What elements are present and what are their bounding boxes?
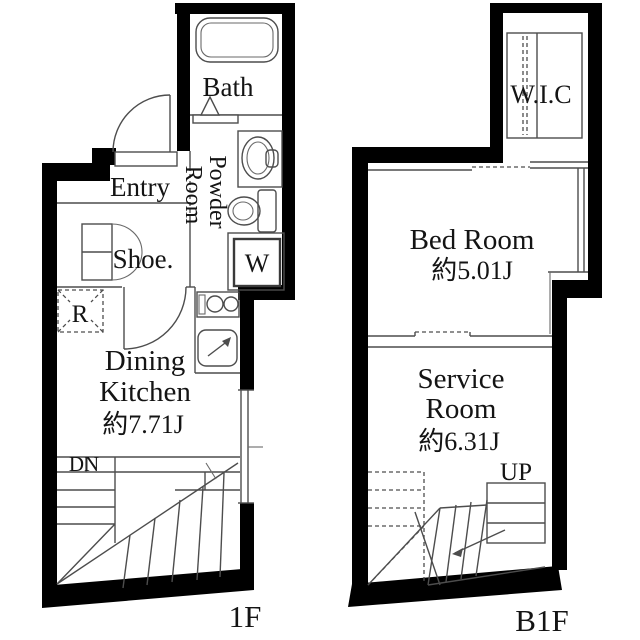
window-1f (238, 390, 263, 503)
stairs-1f (57, 457, 240, 588)
dk-door-arc (124, 287, 186, 349)
wic-label: W.I.C (510, 80, 571, 109)
powder-room-label: Powder Room (180, 155, 230, 234)
service-room-label-1: Service (418, 363, 505, 395)
kitchen-sink-icon (198, 330, 237, 366)
dining-kitchen-label-2: Kitchen (99, 376, 191, 408)
shoe-label: Shoe. (113, 244, 174, 274)
refrigerator-label: R (72, 301, 89, 328)
stairs-b1f (368, 472, 545, 585)
toilet-icon (228, 190, 276, 232)
service-room-size: 約6.31J (418, 427, 500, 456)
bathtub-icon (196, 18, 278, 62)
floorplan-canvas: Bath Entry Powder Room W Shoe. R Dining … (0, 0, 640, 640)
service-room-label-2: Room (426, 393, 497, 425)
stove-icon (197, 292, 239, 317)
bath-door-sill (193, 115, 238, 123)
floor-plan-1f: Bath Entry Powder Room W Shoe. R Dining … (42, 3, 295, 634)
stairs-up-label: UP (500, 459, 532, 486)
dining-kitchen-size: 約7.71J (102, 410, 184, 439)
stairs-dn-label: DN (69, 452, 99, 476)
washbasin-icon (238, 131, 282, 187)
floorplan-page: Bath Entry Powder Room W Shoe. R Dining … (0, 0, 640, 640)
floor-plan-b1f: W.I.C Bed Room 約5.01J Service Room 約6.31… (348, 3, 602, 638)
entry-label: Entry (110, 172, 170, 202)
bath-label: Bath (203, 72, 254, 102)
bedroom-label: Bed Room (410, 224, 535, 256)
entry-door-arc (113, 95, 177, 166)
floor-label-1f: 1F (229, 599, 262, 634)
washing-machine-label: W (245, 249, 270, 278)
dining-kitchen-label-1: Dining (105, 345, 186, 377)
floor-label-b1f: B1F (515, 603, 568, 638)
room-divider-wall (368, 332, 552, 347)
wic-entrance (368, 162, 588, 170)
bedroom-size: 約5.01J (431, 256, 513, 285)
